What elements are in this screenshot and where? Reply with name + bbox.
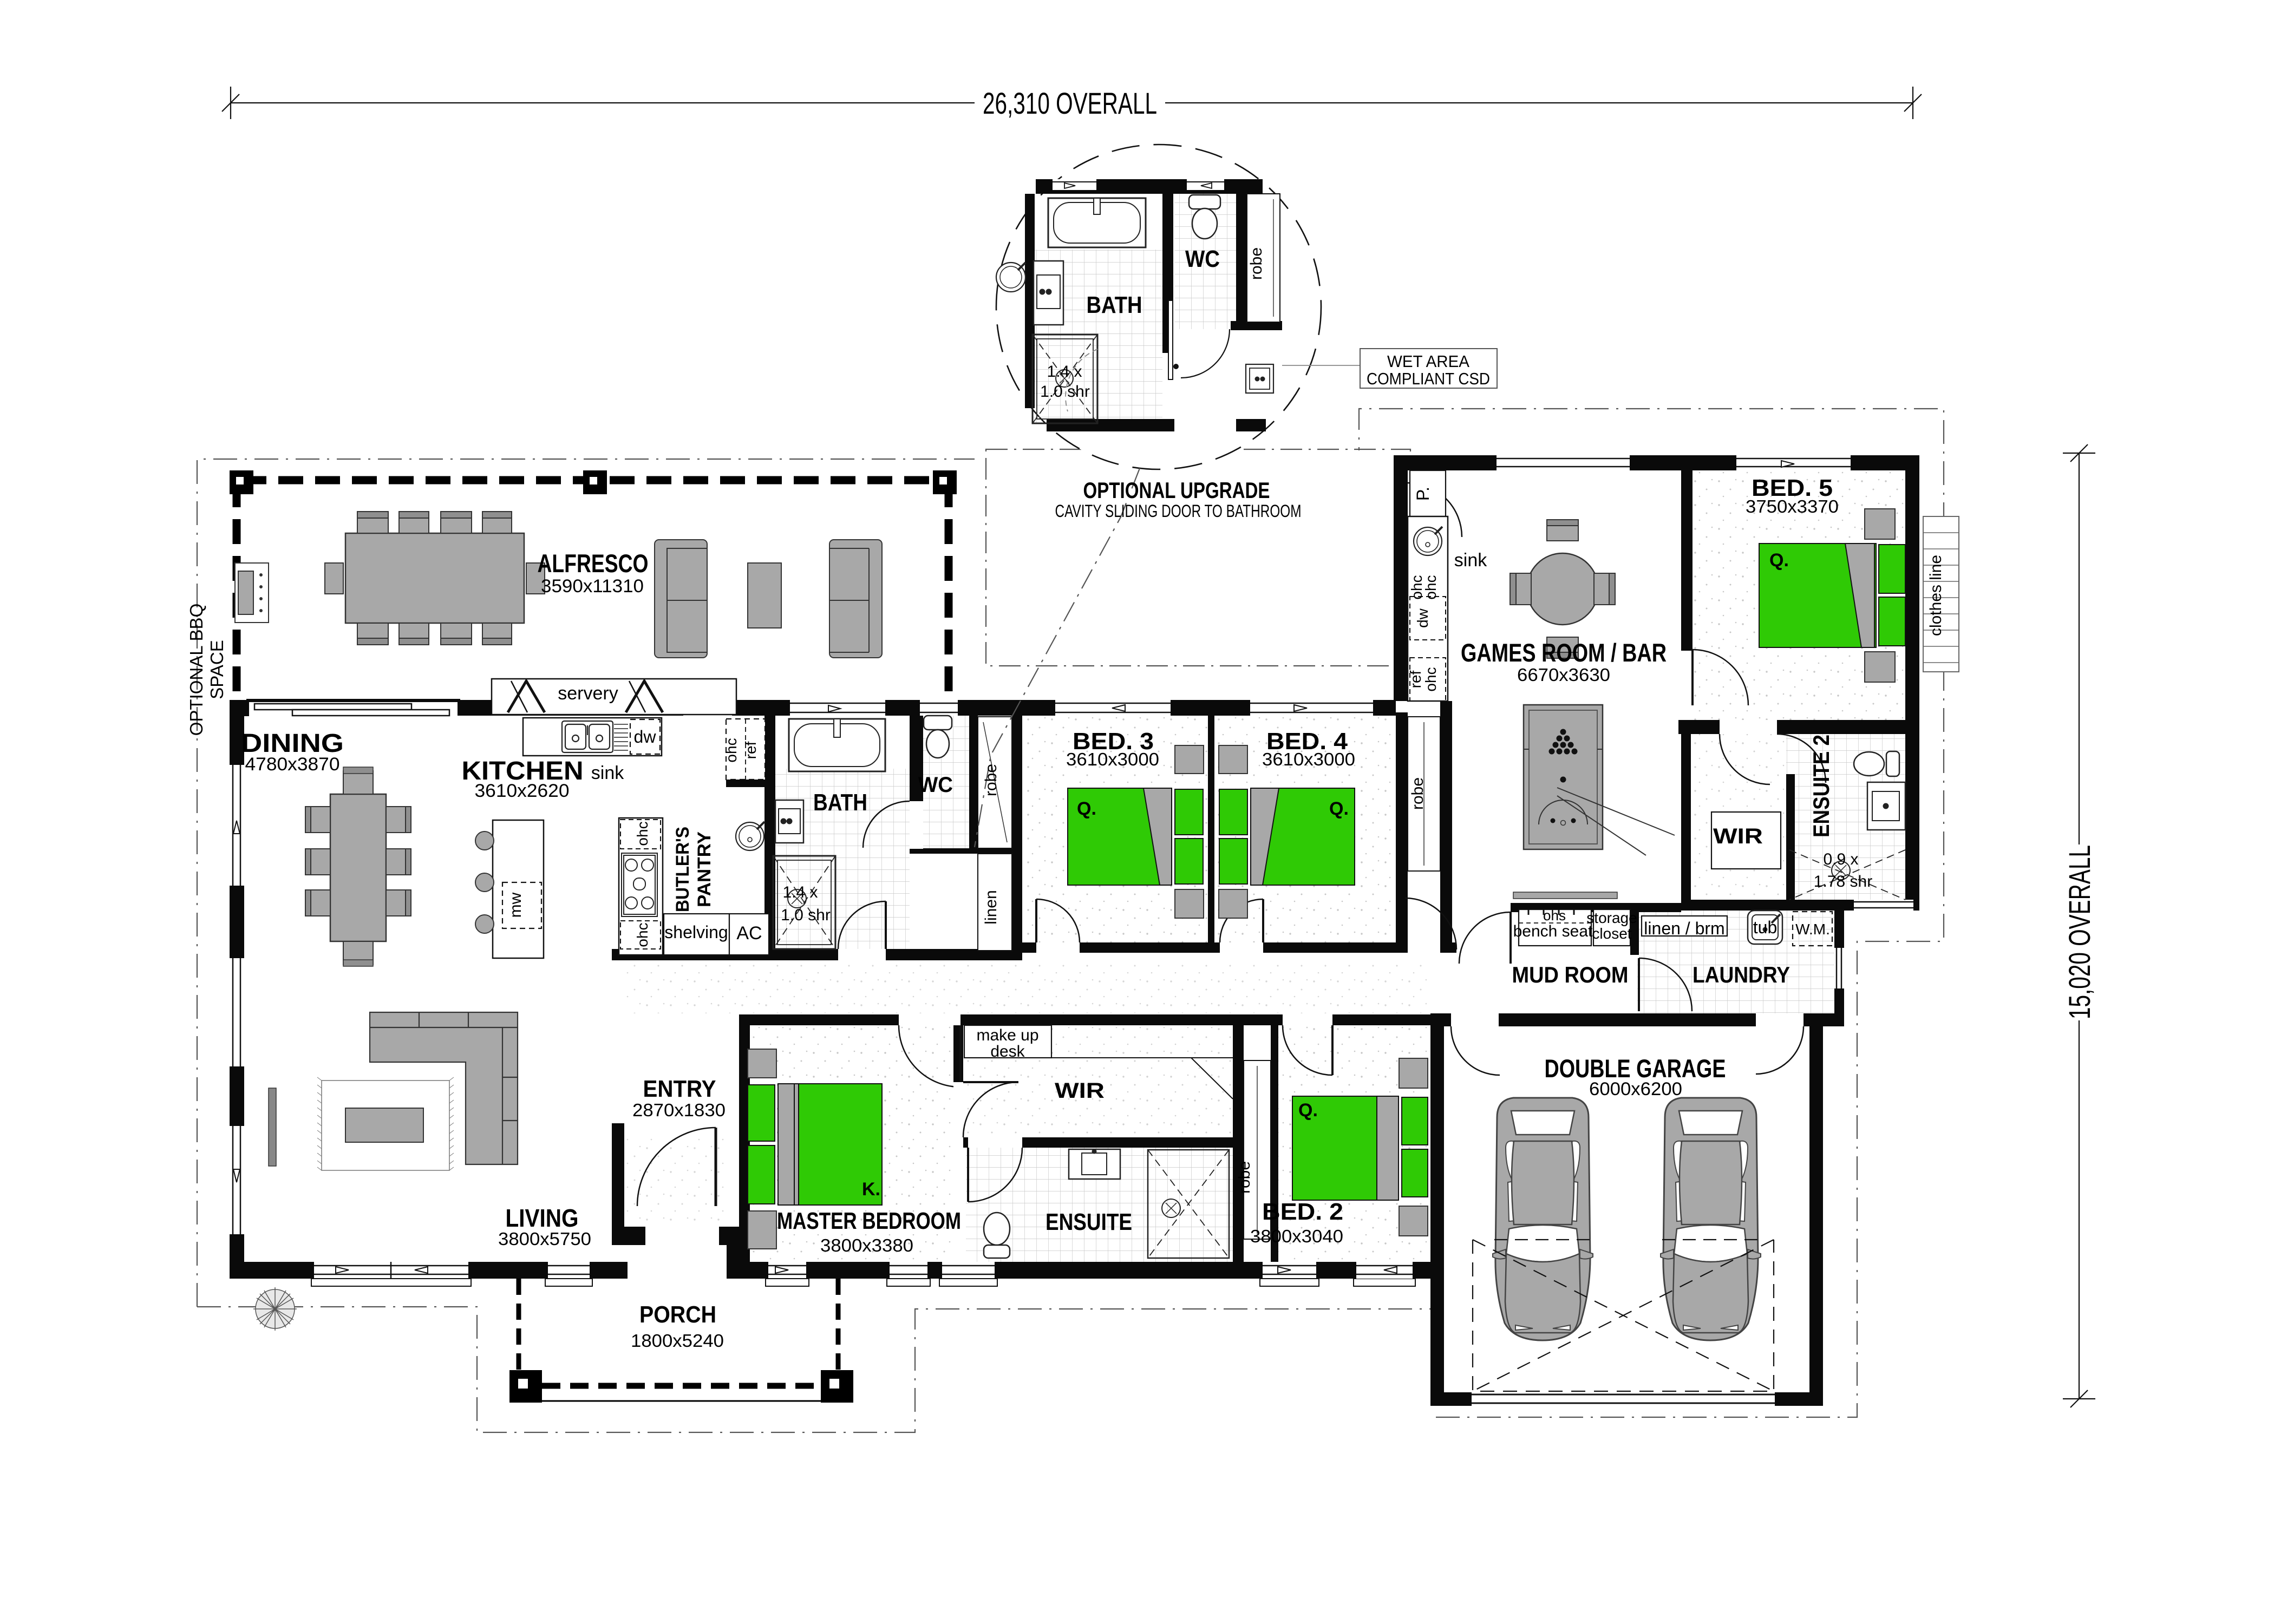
svg-text:6670x3630: 6670x3630: [1517, 665, 1610, 685]
svg-text:sink: sink: [1454, 550, 1487, 571]
svg-text:3590x11310: 3590x11310: [541, 576, 644, 597]
svg-text:Q.: Q.: [1769, 550, 1789, 571]
svg-text:robe: robe: [1247, 247, 1265, 280]
svg-text:26,310 OVERALL: 26,310 OVERALL: [983, 86, 1157, 120]
svg-text:closet: closet: [1592, 925, 1631, 942]
svg-text:4780x3870: 4780x3870: [245, 754, 340, 775]
svg-text:tub: tub: [1753, 918, 1777, 937]
svg-text:sink: sink: [591, 763, 624, 783]
svg-text:ref: ref: [1407, 670, 1424, 688]
svg-text:robe: robe: [982, 764, 1000, 796]
svg-text:desk: desk: [990, 1043, 1025, 1060]
svg-text:WIR: WIR: [1055, 1079, 1105, 1103]
svg-text:1800x5240: 1800x5240: [631, 1331, 724, 1351]
svg-text:1.0 shr: 1.0 shr: [1040, 383, 1090, 401]
svg-text:robe: robe: [1236, 1161, 1253, 1194]
svg-text:1.0 shr: 1.0 shr: [781, 906, 831, 924]
svg-text:storage: storage: [1586, 909, 1637, 926]
svg-text:3610x3000: 3610x3000: [1066, 749, 1159, 769]
svg-text:2870x1830: 2870x1830: [632, 1100, 726, 1120]
svg-text:dw: dw: [1414, 608, 1431, 628]
svg-text:dw: dw: [634, 727, 657, 746]
svg-text:CAVITY SLIDING DOOR TO BATHROO: CAVITY SLIDING DOOR TO BATHROOM: [1055, 501, 1302, 521]
svg-text:ohs: ohs: [1543, 907, 1566, 924]
svg-text:ENSUITE: ENSUITE: [1045, 1209, 1132, 1235]
svg-text:0.9 x: 0.9 x: [1823, 850, 1858, 868]
svg-text:WET AREA: WET AREA: [1387, 352, 1469, 371]
svg-text:ENSUITE 2: ENSUITE 2: [1808, 735, 1834, 837]
svg-text:WIR: WIR: [1713, 824, 1763, 848]
svg-text:Q.: Q.: [1329, 798, 1349, 819]
svg-text:MASTER BEDROOM: MASTER BEDROOM: [777, 1208, 961, 1234]
svg-text:servery: servery: [558, 683, 618, 704]
svg-text:ohc: ohc: [1422, 575, 1439, 599]
svg-text:P.: P.: [1413, 487, 1433, 501]
svg-text:K.: K.: [862, 1179, 880, 1200]
svg-text:linen / brm: linen / brm: [1644, 919, 1724, 938]
svg-text:BATH: BATH: [1087, 292, 1142, 318]
svg-text:ref: ref: [742, 741, 759, 759]
svg-text:BED. 2: BED. 2: [1262, 1199, 1343, 1225]
svg-text:SPACE: SPACE: [207, 640, 227, 699]
svg-text:AC: AC: [736, 923, 762, 944]
svg-text:6000x6200: 6000x6200: [1589, 1079, 1682, 1099]
svg-text:ohc: ohc: [723, 738, 740, 762]
svg-text:linen: linen: [982, 890, 1000, 924]
svg-text:make up: make up: [976, 1026, 1038, 1044]
svg-text:Q.: Q.: [1077, 798, 1096, 819]
svg-text:OPTIONAL UPGRADE: OPTIONAL UPGRADE: [1083, 477, 1270, 503]
svg-text:15,020 OVERALL: 15,020 OVERALL: [2062, 845, 2096, 1019]
svg-text:shelving: shelving: [664, 922, 728, 942]
svg-text:PANTRY: PANTRY: [694, 831, 715, 907]
svg-text:PORCH: PORCH: [639, 1301, 716, 1328]
svg-text:1.78 shr: 1.78 shr: [1814, 873, 1872, 890]
svg-text:BUTLER'S: BUTLER'S: [672, 827, 693, 912]
svg-text:LAUNDRY: LAUNDRY: [1693, 962, 1790, 987]
svg-text:GAMES ROOM / BAR: GAMES ROOM / BAR: [1461, 638, 1667, 667]
svg-text:3800x3040: 3800x3040: [1250, 1226, 1343, 1246]
svg-text:3610x3000: 3610x3000: [1262, 749, 1355, 769]
svg-text:BATH: BATH: [813, 789, 867, 816]
svg-text:1.4 x: 1.4 x: [1047, 363, 1082, 381]
svg-text:1.4 x: 1.4 x: [782, 883, 818, 901]
svg-text:ohc: ohc: [634, 821, 651, 846]
svg-text:Q.: Q.: [1298, 1100, 1318, 1121]
svg-text:3610x2620: 3610x2620: [475, 781, 570, 801]
svg-text:3800x3380: 3800x3380: [820, 1235, 913, 1255]
svg-text:W.M.: W.M.: [1795, 921, 1830, 938]
svg-text:WC: WC: [918, 773, 953, 797]
svg-text:OPTIONAL BBQ: OPTIONAL BBQ: [186, 604, 206, 736]
svg-text:3800x5750: 3800x5750: [498, 1229, 591, 1249]
svg-text:ENTRY: ENTRY: [643, 1076, 716, 1102]
svg-text:COMPLIANT CSD: COMPLIANT CSD: [1367, 369, 1490, 388]
svg-text:WC: WC: [1185, 246, 1220, 272]
svg-text:MUD ROOM: MUD ROOM: [1512, 962, 1629, 987]
svg-text:ohc: ohc: [634, 922, 651, 947]
svg-text:robe: robe: [1409, 777, 1427, 810]
svg-text:clothes line: clothes line: [1927, 555, 1945, 636]
svg-text:LIVING: LIVING: [506, 1204, 579, 1232]
svg-text:bench seat: bench seat: [1513, 922, 1593, 940]
svg-text:ALFRESCO: ALFRESCO: [538, 549, 649, 578]
svg-text:3750x3370: 3750x3370: [1746, 496, 1839, 516]
svg-text:ohc: ohc: [1422, 667, 1439, 691]
svg-text:mw: mw: [507, 892, 525, 918]
